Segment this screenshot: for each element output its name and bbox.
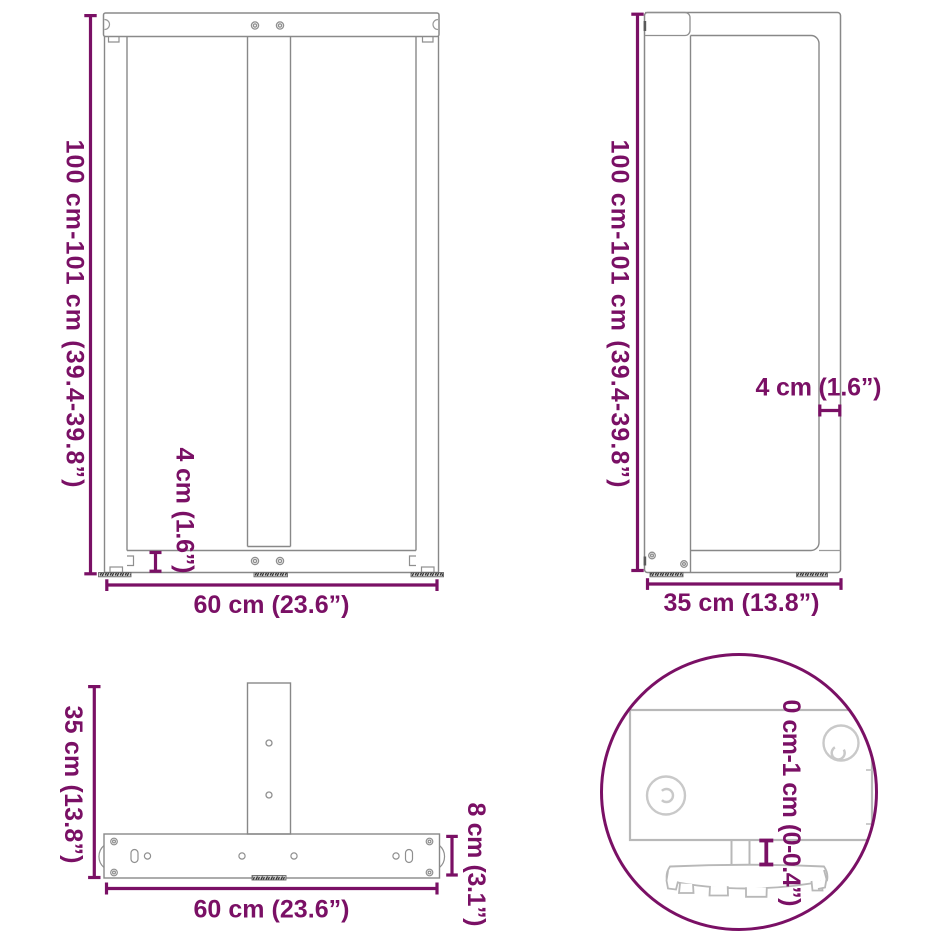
svg-text:35 cm (13.8”): 35 cm (13.8”) (59, 706, 87, 864)
svg-text:60 cm (23.6”): 60 cm (23.6”) (194, 896, 350, 924)
svg-text:0 cm-1 cm (0-0.4”): 0 cm-1 cm (0-0.4”) (777, 700, 805, 907)
svg-text:8 cm (3.1”): 8 cm (3.1”) (462, 803, 490, 927)
svg-text:4 cm (1.6”): 4 cm (1.6”) (756, 374, 882, 402)
svg-text:4 cm (1.6”): 4 cm (1.6”) (171, 448, 199, 574)
svg-text:60 cm (23.6”): 60 cm (23.6”) (194, 591, 350, 619)
svg-text:35 cm (13.8”): 35 cm (13.8”) (664, 589, 820, 617)
